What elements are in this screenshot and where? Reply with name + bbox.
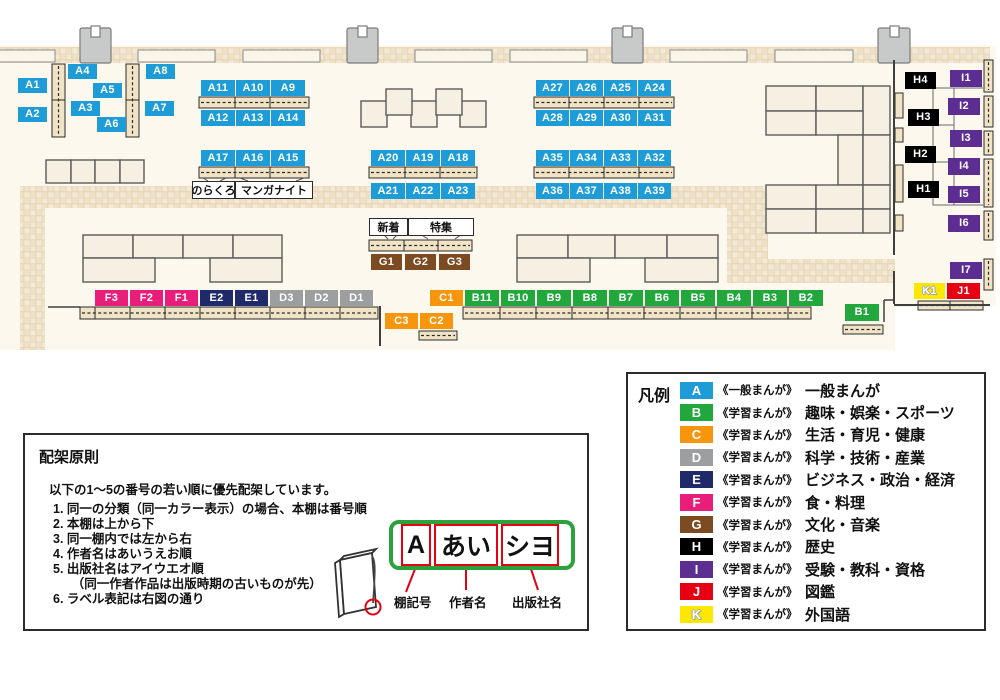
principles-intro: 以下の1～5の番号の若い順に優先配架しています。 [49, 479, 336, 498]
map-label-A1: A1 [18, 78, 47, 93]
annotation-manga-night: マンガナイト [235, 181, 313, 199]
map-label-A22: A22 [406, 183, 440, 199]
legend-chip-F: F [680, 494, 713, 511]
map-label-B1: B1 [845, 304, 879, 321]
map-label-A3: A3 [71, 101, 100, 116]
legend-rows: A《一般まんが》一般まんがB《学習まんが》趣味・娯楽・スポーツC《学習まんが》生… [680, 379, 955, 625]
legend-chip-J: J [680, 583, 713, 600]
legend-name-H: 歴史 [805, 536, 835, 557]
map-label-B8: B8 [573, 290, 607, 306]
map-label-A24: A24 [638, 80, 671, 96]
legend-row-J: J《学習まんが》図鑑 [680, 581, 955, 603]
legend-series-E: 《学習まんが》 [717, 472, 805, 488]
map-label-G1: G1 [371, 254, 402, 270]
map-label-C2: C2 [420, 313, 453, 329]
legend-row-A: A《一般まんが》一般まんが [680, 379, 955, 401]
sample-spine-label: A あい シヨ [389, 520, 575, 570]
sample-publisher: シヨ [501, 524, 559, 566]
legend-title: 凡例 [638, 382, 670, 406]
map-label-B7: B7 [609, 290, 643, 306]
sample-author: あい [434, 524, 498, 566]
legend-name-C: 生活・育児・健康 [805, 424, 925, 445]
map-label-H1: H1 [908, 181, 939, 198]
legend-series-G: 《学習まんが》 [717, 517, 805, 533]
map-label-A4: A4 [68, 64, 97, 79]
annotation-new-arrivals: 新着 [369, 218, 408, 236]
principles-item-2: 2. 本棚は上から下 [53, 517, 367, 532]
principles-item-7: 6. ラベル表記は右図の通り [53, 592, 367, 607]
legend-chip-C: C [680, 426, 713, 443]
principles-item-4: 4. 作者名はあいうえお順 [53, 547, 367, 562]
principles-item-1: 1. 同一の分類（同一カラー表示）の場合、本棚は番号順 [53, 502, 367, 517]
map-label-H4: H4 [905, 72, 936, 89]
legend-name-D: 科学・技術・産業 [805, 447, 925, 468]
legend-series-J: 《学習まんが》 [717, 584, 805, 600]
map-label-A21: A21 [371, 183, 405, 199]
map-label-B3: B3 [753, 290, 787, 306]
map-label-B9: B9 [537, 290, 571, 306]
legend-row-B: B《学習まんが》趣味・娯楽・スポーツ [680, 401, 955, 423]
map-label-D3: D3 [270, 290, 303, 306]
map-label-A18: A18 [441, 150, 475, 166]
map-label-A15: A15 [271, 150, 305, 166]
legend-chip-B: B [680, 404, 713, 421]
legend-chip-D: D [680, 449, 713, 466]
map-label-A6: A6 [97, 117, 126, 132]
legend-name-E: ビジネス・政治・経済 [805, 469, 955, 490]
legend-chip-H: H [680, 538, 713, 555]
map-label-I3: I3 [950, 130, 982, 147]
map-label-A14: A14 [271, 110, 305, 126]
map-label-H3: H3 [908, 109, 939, 126]
legend-chip-I: I [680, 561, 713, 578]
legend-box: 凡例 A《一般まんが》一般まんがB《学習まんが》趣味・娯楽・スポーツC《学習まん… [626, 372, 986, 631]
legend-chip-E: E [680, 471, 713, 488]
map-label-B5: B5 [681, 290, 715, 306]
map-label-A12: A12 [201, 110, 235, 126]
map-label-B10: B10 [501, 290, 535, 306]
principles-title: 配架原則 [39, 446, 99, 467]
map-label-A37: A37 [570, 183, 603, 199]
map-label-E2: E2 [200, 290, 233, 306]
caption-shelf-code: 棚記号 [394, 592, 432, 611]
map-label-B11: B11 [465, 290, 499, 306]
map-label-B4: B4 [717, 290, 751, 306]
map-label-A13: A13 [236, 110, 270, 126]
map-label-A19: A19 [406, 150, 440, 166]
legend-series-A: 《一般まんが》 [717, 382, 805, 398]
map-label-A20: A20 [371, 150, 405, 166]
map-label-A30: A30 [604, 110, 637, 126]
map-label-A35: A35 [536, 150, 569, 166]
map-label-I4: I4 [948, 158, 980, 175]
caption-publisher: 出版社名 [512, 592, 562, 611]
map-label-A39: A39 [638, 183, 671, 199]
legend-name-A: 一般まんが [805, 380, 880, 401]
principles-box: 配架原則 以下の1～5の番号の若い順に優先配架しています。 1. 同一の分類（同… [23, 433, 589, 631]
map-label-B6: B6 [645, 290, 679, 306]
map-label-A36: A36 [536, 183, 569, 199]
legend-name-J: 図鑑 [805, 581, 835, 602]
legend-chip-K: K [680, 606, 713, 623]
map-label-C1: C1 [430, 290, 463, 306]
legend-name-B: 趣味・娯楽・スポーツ [805, 402, 955, 423]
map-label-D2: D2 [305, 290, 338, 306]
legend-chip-G: G [680, 516, 713, 533]
map-label-A5: A5 [93, 83, 122, 98]
map-label-A28: A28 [536, 110, 569, 126]
map-label-A38: A38 [604, 183, 637, 199]
map-label-C3: C3 [385, 313, 418, 329]
map-label-I7: I7 [950, 262, 982, 279]
map-label-G2: G2 [405, 254, 436, 270]
map-label-I6: I6 [948, 215, 980, 232]
map-label-A27: A27 [536, 80, 569, 96]
map-label-F2: F2 [130, 290, 163, 306]
map-label-A16: A16 [236, 150, 270, 166]
legend-row-G: G《学習まんが》文化・音楽 [680, 513, 955, 535]
legend-name-K: 外国語 [805, 604, 850, 625]
legend-row-E: E《学習まんが》ビジネス・政治・経済 [680, 469, 955, 491]
map-label-A32: A32 [638, 150, 671, 166]
principles-item-6: （同一作者作品は出版時期の古いものが先） [53, 577, 367, 592]
map-label-I2: I2 [948, 98, 980, 115]
map-label-F1: F1 [165, 290, 198, 306]
map-label-A31: A31 [638, 110, 671, 126]
map-label-B2: B2 [789, 290, 823, 306]
map-label-A8: A8 [146, 64, 175, 79]
legend-name-I: 受験・教科・資格 [805, 559, 925, 580]
map-label-E1: E1 [235, 290, 268, 306]
map-label-A26: A26 [570, 80, 603, 96]
legend-series-F: 《学習まんが》 [717, 494, 805, 510]
map-label-A17: A17 [201, 150, 235, 166]
map-label-A11: A11 [201, 80, 235, 96]
legend-row-I: I《学習まんが》受験・教科・資格 [680, 558, 955, 580]
map-label-A2: A2 [18, 107, 47, 122]
legend-row-C: C《学習まんが》生活・育児・健康 [680, 424, 955, 446]
principles-item-3: 3. 同一棚内では左から右 [53, 532, 367, 547]
legend-chip-A: A [680, 382, 713, 399]
map-label-A10: A10 [236, 80, 270, 96]
legend-series-C: 《学習まんが》 [717, 427, 805, 443]
legend-series-K: 《学習まんが》 [717, 606, 805, 622]
legend-row-H: H《学習まんが》歴史 [680, 536, 955, 558]
map-label-G3: G3 [439, 254, 470, 270]
map-label-A33: A33 [604, 150, 637, 166]
annotation-norakuro: のらくろ [192, 181, 235, 199]
legend-name-G: 文化・音楽 [805, 514, 880, 535]
legend-series-B: 《学習まんが》 [717, 405, 805, 421]
caption-author: 作者名 [449, 592, 487, 611]
caption-pointer-lines [406, 569, 538, 592]
legend-name-F: 食・料理 [805, 492, 865, 513]
map-label-I5: I5 [948, 186, 980, 203]
principles-list: 1. 同一の分類（同一カラー表示）の場合、本棚は番号順2. 本棚は上から下3. … [53, 502, 367, 607]
map-label-H2: H2 [905, 146, 936, 163]
map-label-K1: K1 [914, 283, 945, 299]
map-label-A29: A29 [570, 110, 603, 126]
legend-series-H: 《学習まんが》 [717, 539, 805, 555]
principles-item-5: 5. 出版社名はアイウエオ順 [53, 562, 367, 577]
map-label-A7: A7 [145, 101, 174, 116]
legend-series-I: 《学習まんが》 [717, 561, 805, 577]
map-label-A34: A34 [570, 150, 603, 166]
map-label-A23: A23 [441, 183, 475, 199]
library-floor-map: A1A2A4A3A5A6A8A7A11A10A9A12A13A14A17A16A… [0, 0, 1000, 700]
map-label-J1: J1 [947, 283, 980, 299]
map-label-I1: I1 [950, 70, 982, 87]
map-label-A25: A25 [604, 80, 637, 96]
legend-row-D: D《学習まんが》科学・技術・産業 [680, 446, 955, 468]
map-label-A9: A9 [271, 80, 305, 96]
map-label-F3: F3 [95, 290, 128, 306]
legend-row-F: F《学習まんが》食・料理 [680, 491, 955, 513]
legend-row-K: K《学習まんが》外国語 [680, 603, 955, 625]
map-label-D1: D1 [340, 290, 373, 306]
legend-series-D: 《学習まんが》 [717, 449, 805, 465]
sample-shelf-code: A [401, 524, 431, 566]
annotation-feature: 特集 [408, 218, 474, 236]
